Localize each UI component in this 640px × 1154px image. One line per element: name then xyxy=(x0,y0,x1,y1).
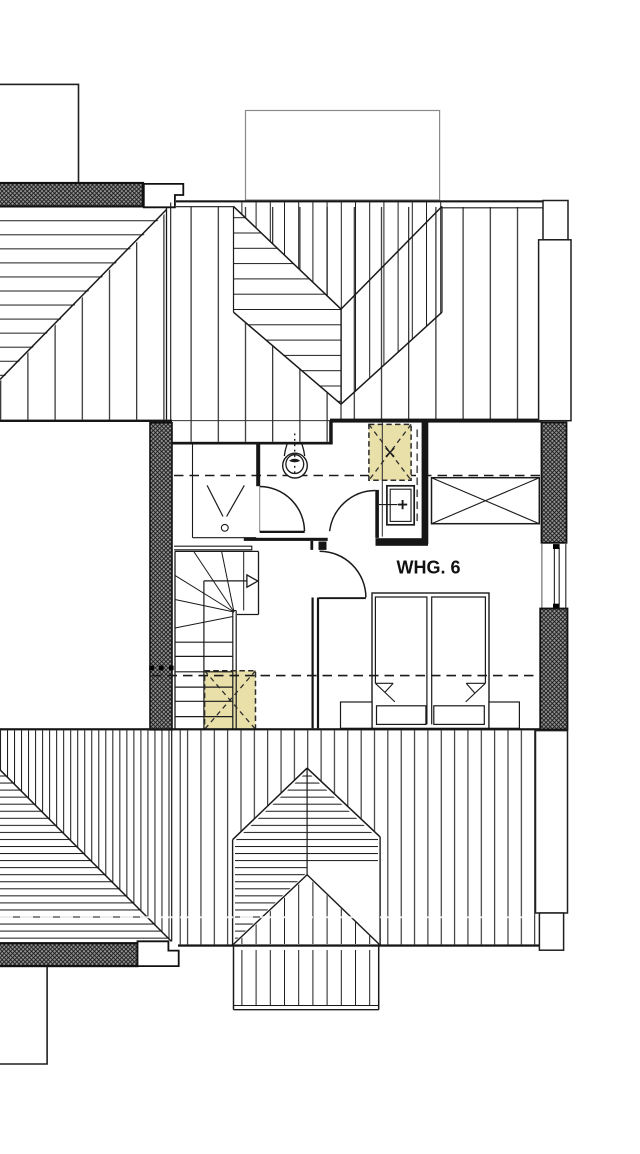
svg-text:WHG. 6: WHG. 6 xyxy=(397,557,461,577)
